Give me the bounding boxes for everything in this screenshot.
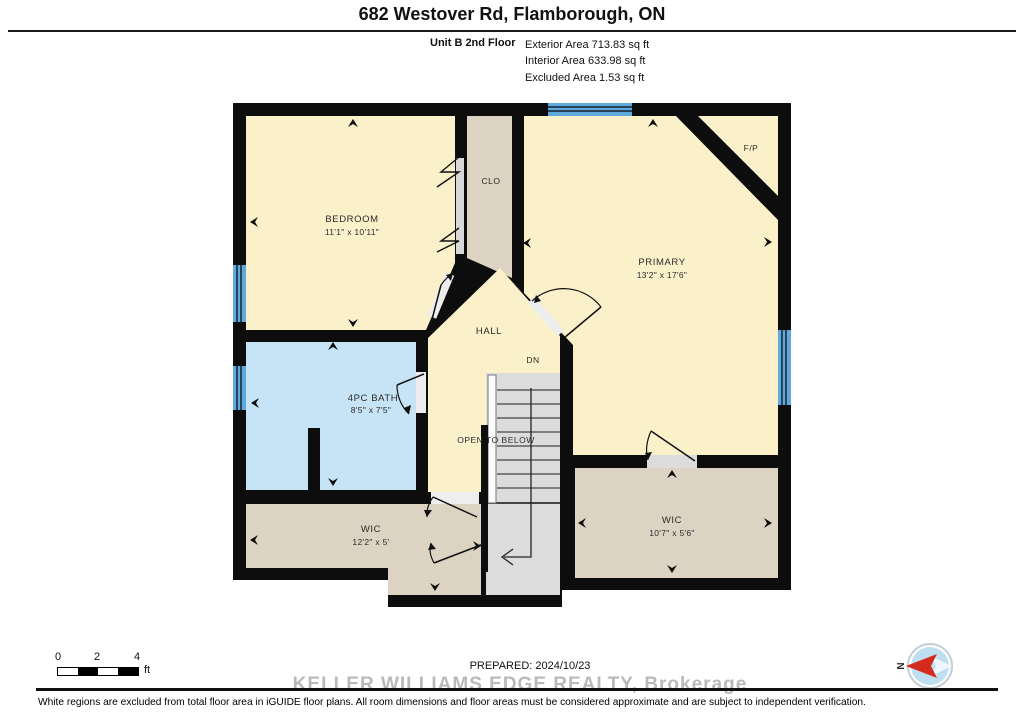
floor-plan: BEDROOM 11'1" x 10'11" CLO PRIMARY 13'2"…: [0, 0, 1024, 720]
room-wic-left: [246, 504, 481, 595]
primary-label: PRIMARY: [638, 257, 685, 268]
scale-tick: 4: [134, 651, 140, 663]
window-top: [548, 103, 632, 116]
scale-bar-ticks: 0 2 4: [0, 651, 200, 664]
bedroom-label: BEDROOM: [325, 214, 378, 225]
footer-divider: [36, 688, 998, 691]
room-bath: [246, 342, 416, 490]
window-left-bedroom: [233, 265, 246, 322]
wic-right-label: WIC: [662, 515, 682, 526]
stairs-side-wall: [481, 425, 488, 572]
wic-left-label: WIC: [361, 524, 381, 535]
bath-dims: 8'5" x 7'5": [351, 405, 391, 415]
wic-left-dims: 12'2" x 5': [352, 537, 389, 547]
wic-right-dims: 10'7" x 5'6": [649, 528, 695, 538]
window-left-bath: [233, 366, 246, 410]
stairs-down-label: DN: [526, 355, 539, 365]
room-clo: [467, 116, 512, 278]
primary-dims: 13'2" x 17'6": [637, 270, 688, 280]
staircase: [481, 373, 560, 595]
scale-tick: 2: [94, 651, 100, 663]
prepared-date: PREPARED: 2024/10/23: [330, 660, 730, 672]
bath-wall-stub: [308, 428, 320, 490]
disclaimer-text: White regions are excluded from total fl…: [38, 697, 1018, 708]
window-right-primary: [778, 330, 791, 405]
hall-label: HALL: [476, 326, 502, 337]
bedroom-dims: 11'1" x 10'11": [325, 227, 379, 237]
bath-label: 4PC BATH: [348, 393, 399, 404]
stairs-area: [486, 373, 560, 595]
compass-n-label: N: [896, 662, 907, 669]
open-to-below-label: OPEN TO BELOW: [457, 435, 535, 445]
clo-label: CLO: [482, 176, 501, 186]
brokerage-watermark: KELLER WILLIAMS EDGE REALTY, Brokerage: [0, 674, 1024, 696]
scale-tick: 0: [55, 651, 61, 663]
fireplace-label: F/P: [744, 143, 759, 153]
